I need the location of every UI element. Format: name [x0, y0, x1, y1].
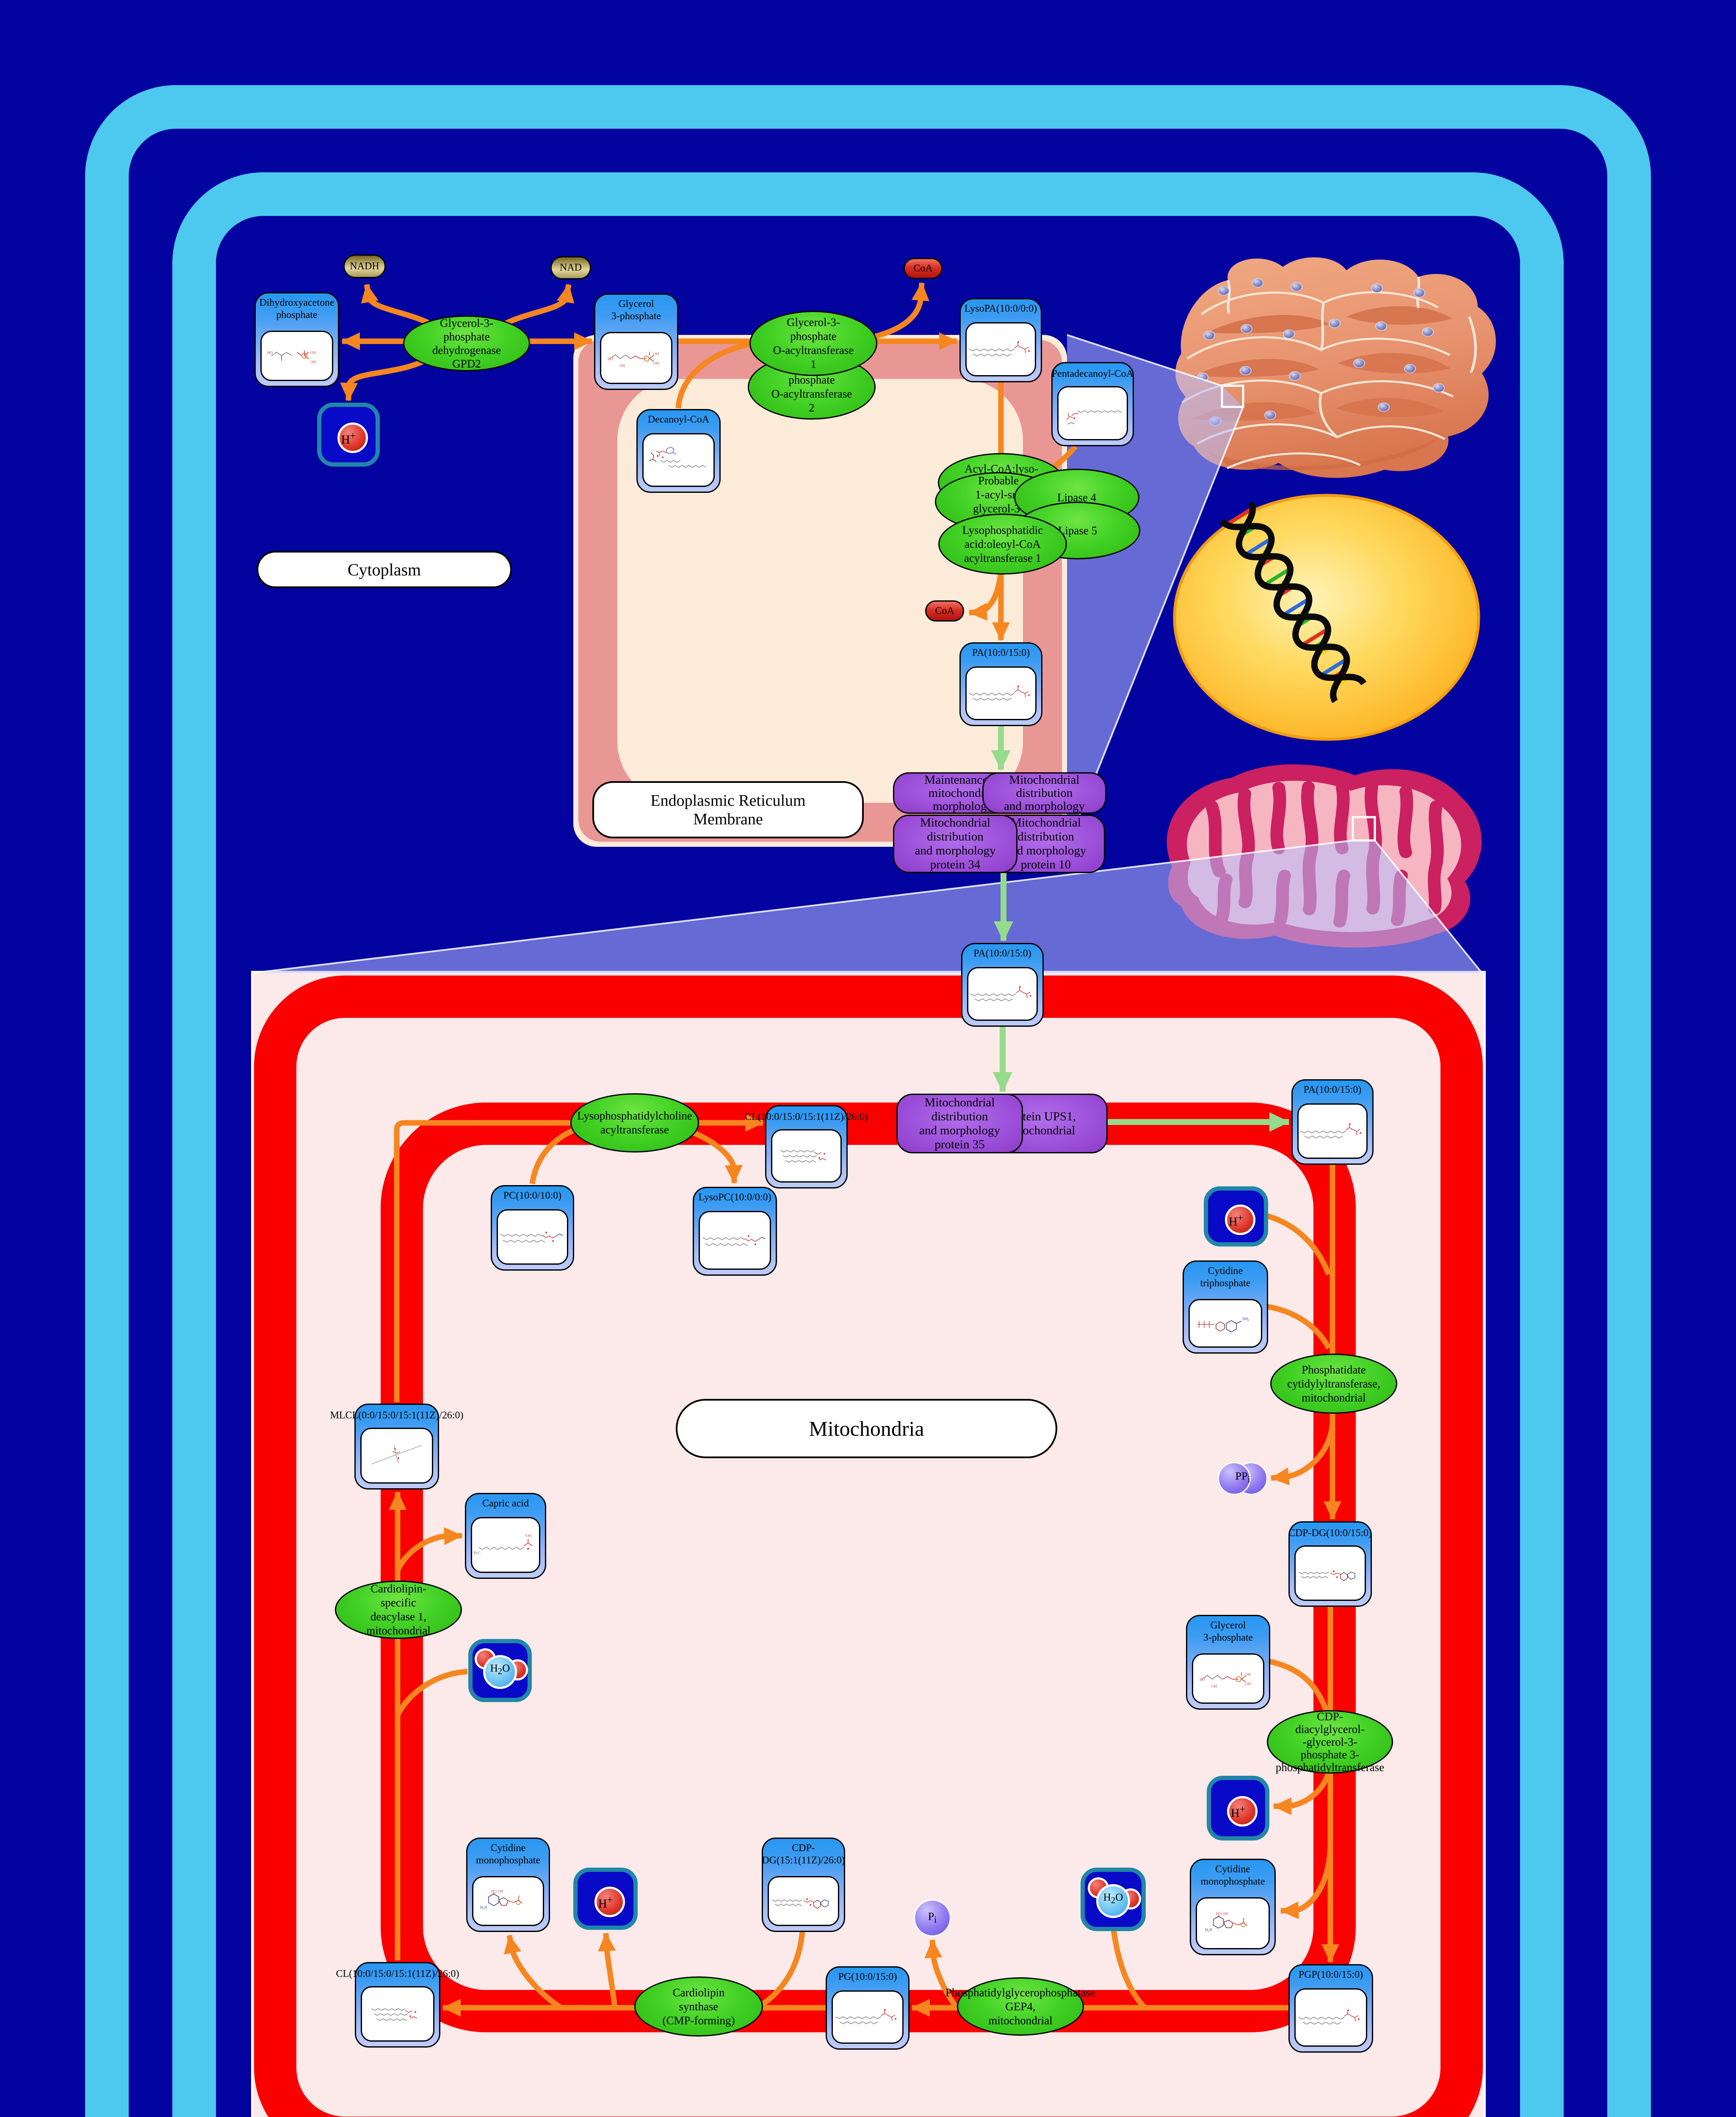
svg-text:OH: OH [525, 1534, 531, 1538]
svg-text:HO OH: HO OH [1216, 1912, 1228, 1916]
svg-text:OH: OH [310, 360, 316, 364]
svg-text:OH: OH [619, 364, 625, 368]
svg-text:H2N: H2N [1205, 1928, 1212, 1933]
svg-text:H2N: H2N [480, 1905, 487, 1910]
svg-text:OH: OH [653, 361, 659, 365]
svg-text:OH: OH [1245, 1672, 1251, 1677]
svg-text:HO: HO [267, 351, 273, 355]
svg-text:OH: OH [653, 352, 659, 356]
svg-text:OH: OH [1245, 1682, 1251, 1686]
svg-text:OH: OH [1211, 1684, 1217, 1689]
svg-text:HO OH: HO OH [491, 1889, 503, 1893]
svg-text:NH2: NH2 [1242, 1317, 1249, 1322]
svg-text:H3C: H3C [474, 1550, 481, 1556]
svg-text:HO: HO [1200, 1678, 1205, 1682]
svg-text:HO: HO [608, 357, 613, 361]
svg-text:OH: OH [310, 351, 316, 355]
